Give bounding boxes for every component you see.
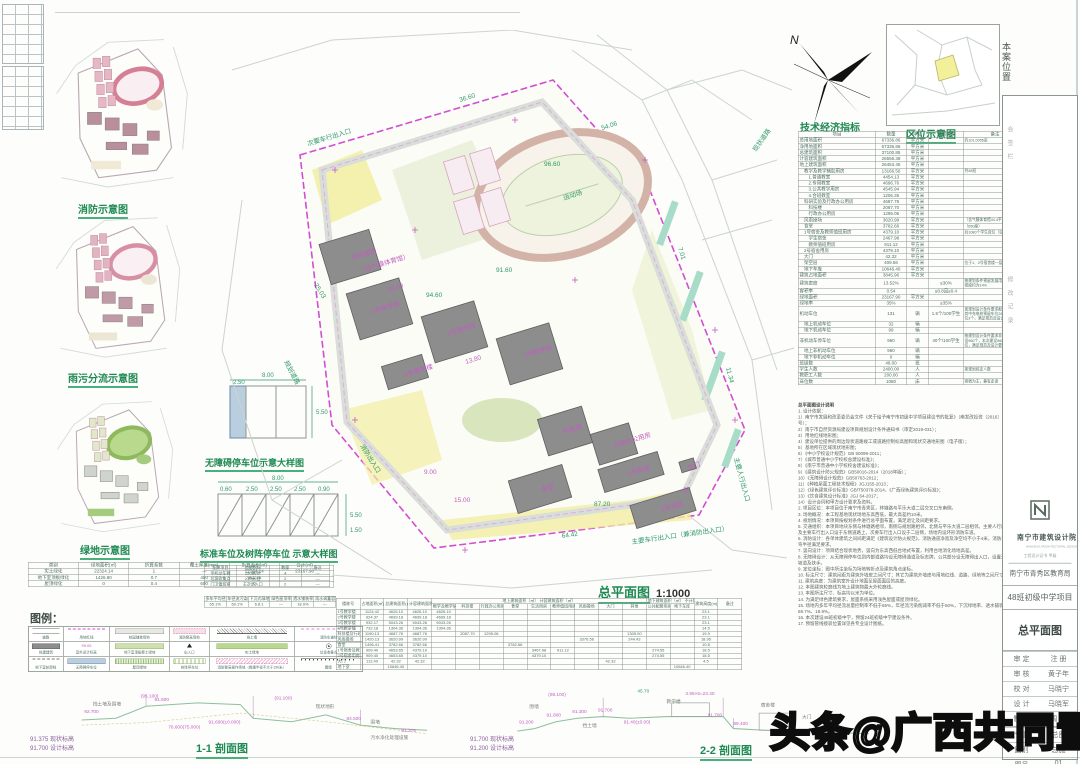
plan-annotation: 64.42 [561,531,578,540]
titleblock-field: 黄子年 [1040,666,1077,681]
cell: 6.8:1 [248,602,270,608]
column-header: 透水铺装率 [292,596,314,602]
institute-logo [1003,496,1077,529]
legend-label: 屋顶绿地 [133,665,147,670]
section-label: 91.800 [155,697,170,702]
cell: ≤30% [929,278,964,288]
titleblock-field: 马晓宁 [1040,681,1077,696]
north-compass: N [780,28,875,123]
plan-annotation: 87.20 [594,501,611,508]
cell: 40个/100学生 [929,333,964,348]
note-line: 6. 消防设计：各单体建筑之间间距满足《建筑设计防火规范》，消防通道净宽及净空均… [798,536,1016,548]
level-symbol: 99.05 [68,644,105,649]
level-legend-item: 91.200 设计标高 [470,745,514,754]
section2-caption: 2-2 剖面图 [700,742,752,761]
section-label: 污水净化处理设施 [371,734,409,741]
legend-item: 实土绿地 [210,642,295,657]
note-line: 17. 预留管线接驳位置详见各专业设计图纸。 [798,621,1016,627]
titleblock-field: 审 核 [1003,666,1040,681]
project-name: 48班初级中学项目 [1003,585,1077,609]
legend: 道路用地红线校园铺装场地消防登高场地挡土墙消防车道线拟建建筑99.05室外设计标… [28,626,364,672]
cell: 辆 [906,307,929,322]
column-header: 计容建筑面积(㎡) [408,598,432,609]
green-space-thumbnail [45,400,185,540]
entry-symbol [187,644,192,648]
trash-symbol [326,644,332,650]
titleblock-field: 01 [1040,757,1077,764]
cell [503,664,527,670]
column-header: 地下建筑面积（㎡） 不计容建筑面积（㎡） [646,598,694,604]
site-plan: 1号教学楼2号教学楼3号教学楼4号教学楼科技楼行政办公用房风雨操场（含气膜体育馆… [212,30,797,590]
fireline-symbol [173,629,205,635]
section-label: 91.40(±0.00) [624,719,651,724]
acc-park-symbol [68,659,106,665]
legend-item: 挡土墙 [210,627,295,642]
locator-streets [887,25,997,123]
sheet-border-top [55,12,520,13]
section1-level-legend: 91.375 现状标高91.700 设计标高 [30,736,74,754]
legend-item: 树阵停车位 [170,657,210,672]
section-label: 45.70 [637,689,649,694]
legend-item: 出入口 [170,642,210,657]
section-label: 围墙 [371,718,381,725]
section-label: 91.600(±0.000) [209,719,241,724]
cell [622,664,646,670]
institute-name: 南宁市建筑设计院 [1017,532,1063,542]
legend-item: 99.05室外设计标高 [64,642,110,657]
section-label: (98.100) [548,692,566,697]
sponge-metrics-table: 多年平均径流总量控制率年径流污染削减率下沉式绿地率绿色屋顶率透水铺装率雨水调蓄容… [204,596,336,619]
note-line: 1）南宁市发展和改革委员会文件《关于给予南宁市初级中学项目建议书的批复》（南发改… [798,414,1016,426]
cell [694,664,718,670]
legend-item: 拟建建筑 [29,642,64,657]
section-label: 围墙 [529,703,539,710]
legend-label: 挡土墙 [247,635,257,640]
level-legend-item: 91.375 现状标高 [30,736,74,745]
column-header: 年径流污染削减率 [226,596,248,602]
cell: — [314,602,336,608]
rain-sewage-caption: 雨污分流示意图 [68,370,138,388]
cell: 科技楼及行政办公用房 [336,631,360,637]
cell: 69.1% [226,602,248,608]
institute-cert: 工程设计证书 甲级 [1022,553,1059,559]
cell [432,664,456,670]
cell [479,664,503,670]
table-row: 65.1%69.1%6.8:1—18.9%— [204,602,336,608]
section-label: 92.700 [84,709,99,714]
cell: 13.52% [876,278,907,288]
legend-label: 实土绿地 [245,650,259,655]
plan-annotation: 主要人行出入口 [732,456,752,502]
section-label: 76.600(75.000) [168,725,200,730]
legend-item: 无障碍停车位 [64,657,110,672]
cell [456,664,480,670]
note-line: 8. 无障碍设计：从无障碍停车位到内部道路均设无障碍通道及标志牌，公共部分设无障… [798,554,1016,566]
legend-title: 图例： [30,610,63,626]
retain-symbol [217,629,287,635]
cell: 2号宿舍用房 [336,653,360,659]
legend-item: 道路 [29,627,64,642]
section-label: 91.700 [598,707,613,712]
design-notes: 总平面图设计说明1. 设计依据：1）南宁市发展和改革委员会文件《关于给予南宁市初… [798,402,1016,700]
plan-annotation: 96.60 [544,161,561,168]
cell: 18.9% [292,602,314,608]
legend-label: 地下室顶板覆土绿地 [124,650,155,655]
section-label: 91.200 [519,719,534,724]
legend-label: 室外设计标高 [76,650,97,655]
column-header: 下沉式绿地率 [248,596,270,602]
cell: 1.5个/100学生 [929,307,964,322]
legend-item: 校园铺装场地 [110,627,170,642]
legend-label: 垃圾收集点 [320,650,337,655]
title-block: 会 签 栏 修 改 记 录 南宁市建筑设计院 NANNING ARCHITECT… [1002,95,1078,760]
legend-item: 屋顶绿地 [110,657,170,672]
legend-label: 消防车道线 [320,635,337,640]
column-header: 教学及教学辅助用房 [432,604,456,610]
tree-park-symbol [173,659,205,665]
plan-annotation: 主要车行出入口（兼消防出入口） [631,523,729,545]
paving-symbol [115,629,164,635]
cell: 1080 [876,379,907,385]
column-header: 总建筑面积(㎡) [384,598,408,609]
drawing-sheet: 消防示意图 雨污分流示意图 绿地示意图 类别绿地面积(㎡)折算系数覆土厚度(mm… [0,0,1080,764]
podium-symbol [115,644,164,650]
title-block-side-note-1: 会 签 栏 [1005,126,1014,162]
cell: 床位数 [798,379,876,385]
column-header: 绿色屋顶率 [270,596,292,602]
titleblock-field: 校 对 [1003,681,1040,696]
cell [599,664,623,670]
column-header: 建筑高度(m) [694,598,718,609]
legend-item: 消防登高场地 [170,627,210,642]
legend-label: 无障碍停车位 [76,665,97,670]
note-line: 5. 交通组织：本项目地块东侧与林塘路相邻，南侧与规划路相邻，北侧与平乐大道二层… [798,523,1016,535]
cell [360,664,384,670]
column-header: 占地面积(㎡) [360,598,384,609]
site-parcel-highlight [935,55,959,81]
plan-annotation: 现状道路 [750,126,773,153]
institute-name-en: NANNING ARCHITECTURAL DESIGN INSTITUTE [1026,545,1054,548]
level-legend-item: 91.700 现状标高 [470,736,514,745]
cell: 机动车位 [798,307,876,322]
legend-label: 消防登高场地 [179,635,200,640]
solid-green-symbol [217,644,288,650]
cell: 1号宿舍及教师值班用房 [336,648,360,654]
cell [575,664,599,670]
econ-row: 建筑密度13.52%≤30%按规划条件预留发展用地后本期建筑密度约为14% [798,278,1016,288]
client-name: 南宁市青秀区教育局 [1009,563,1072,583]
plan-annotation: 54.06 [601,120,619,132]
column-header: 教师值班用房 [551,604,575,610]
legend-item: 用地红线 [64,627,110,642]
econ-row: 机动车位131辆1.5个/100学生按规划设计条件要求配建机动车位，其中充电桩预… [798,307,1016,322]
cell: 地下室 [336,664,360,670]
column-header: 备注 [718,598,742,609]
cell: 10646.40 [384,664,408,670]
rain-sewage-thumbnail [48,216,188,366]
section-label: (91.100) [275,695,293,700]
plan-annotation: 9.00 [424,469,437,476]
legend-label: 地下室轮廓线 [36,665,57,670]
locator-map [886,24,1000,126]
redline-symbol [68,629,105,635]
section-label: 教学楼 [667,698,681,705]
cell: 辆 [906,333,929,348]
titleblock-field: 注 册 [1040,651,1077,666]
level-legend-item: 91.700 设计标高 [30,745,74,754]
plan-annotation: 规划道路 [282,359,302,387]
revision-grid-2 [2,66,44,130]
section-label: 91.300 [572,709,587,714]
north-label: N [790,33,799,47]
cell: 屋顶绿化 [28,581,78,587]
title-block-side-note-2: 修 改 记 录 [1005,276,1014,326]
legend-label: 出入口 [184,650,194,655]
section-label: 91.700 [708,713,723,718]
legend-label: 用地红线 [80,635,94,640]
cell: 10646.40 [670,664,694,670]
cell [906,278,929,288]
cell [527,664,551,670]
section1-ground [82,703,427,730]
cell: 131 [876,307,907,322]
section-label: 84.500 [347,716,362,721]
cell: 0.4 [129,581,179,587]
cell: 65.1% [204,602,226,608]
cell [929,379,964,385]
section-label: 现状地形 [316,703,335,710]
econ-row: 床位数1080床寄宿为主，兼有走读 [798,379,1016,385]
revision-grid-1 [2,4,44,64]
legend-label: 树阵停车位 [181,665,198,670]
section-label: 挡土墙 [583,722,597,729]
column-header: 行政办公用房 [479,604,503,610]
section-1-1: 92.700(95.100)挡土墙及围墙91.80076.600(75.000)… [38,684,470,744]
titleblock-field: 图号 [1003,757,1040,764]
cell [646,664,670,670]
compass-star [788,44,872,123]
section2-level-legend: 91.700 现状标高91.200 设计标高 [470,736,514,754]
plan-annotation: 36.60 [459,92,477,104]
econ-table: 项目数量单位规划条件备注总用地面积67336.86平方米约101.0055亩净用… [798,131,1016,399]
cell: — [270,602,292,608]
titleblock-field: 审 定 [1003,651,1040,666]
basement-symbol [32,659,59,665]
building-table: 楼栋号占地面积(㎡)总建筑面积(㎡)计容建筑面积(㎡)地上建筑面积（㎡） 计容建… [336,598,744,672]
cell [408,664,432,670]
road-symbol [32,629,59,635]
cell: 960 [876,333,907,348]
plan-annotation: 15.00 [454,497,471,504]
column-header: 公共配套用房 [646,604,670,610]
legend-label: 校园铺装场地 [129,635,150,640]
column-header: 楼栋号 [336,598,360,609]
drawing-title: 总平面图 [1003,609,1077,650]
bldg-symbol [32,644,60,650]
legend-label: 道路 [43,635,50,640]
section-label: 91.800 [547,713,562,718]
toutiao-watermark: 头条@广西共同置业 [770,700,1080,758]
cell: 0 [79,581,129,587]
section1-caption: 1-1 剖面图 [196,740,248,759]
section-label: 81.375 [401,728,416,733]
fire-plan-thumbnail [52,36,192,198]
green-space-caption: 绿地示意图 [80,542,130,560]
cell [718,664,742,670]
cell: 非机动车停车位 [798,333,876,348]
cell: 床 [906,379,929,385]
note-line: 15. 场地内多年平均径流总量控制率不低于65%，年径流污染削减率不低于50%，… [798,602,1016,614]
fire-op-symbol [217,659,288,665]
legend-item: 消防登高操作场地（救援半径不大于150米） [210,657,295,672]
cell [551,664,575,670]
legend-label: 围墙 [325,665,332,670]
legend-label: 拟建建筑 [39,650,53,655]
site-location-label: 本案位置 [1000,42,1010,82]
legend-item: 地下室轮廓线 [29,657,64,672]
plan-annotation: 94.60 [426,292,443,299]
cell: 建筑密度 [798,278,876,288]
section-label: 挡土墙及围墙 [93,700,122,707]
legend-item: 地下室顶板覆土绿地 [110,642,170,657]
plan-annotation: 91.60 [496,267,513,274]
column-header: 多年平均径流总量控制率 [204,596,226,602]
econ-row: 非机动车停车位960辆40个/100学生按规划设计条件要求非机动车位需建设960… [798,333,1016,348]
section-label: 89.400 [733,721,748,726]
roof-green-symbol [115,659,164,665]
legend-label: 消防登高操作场地（救援半径不大于150米） [218,665,287,670]
building-row: 地下室10646.4010646.40 [336,664,742,670]
column-header: 雨水调蓄容积 [314,596,336,602]
section-label: 3.95×6=23.40 [685,691,714,696]
